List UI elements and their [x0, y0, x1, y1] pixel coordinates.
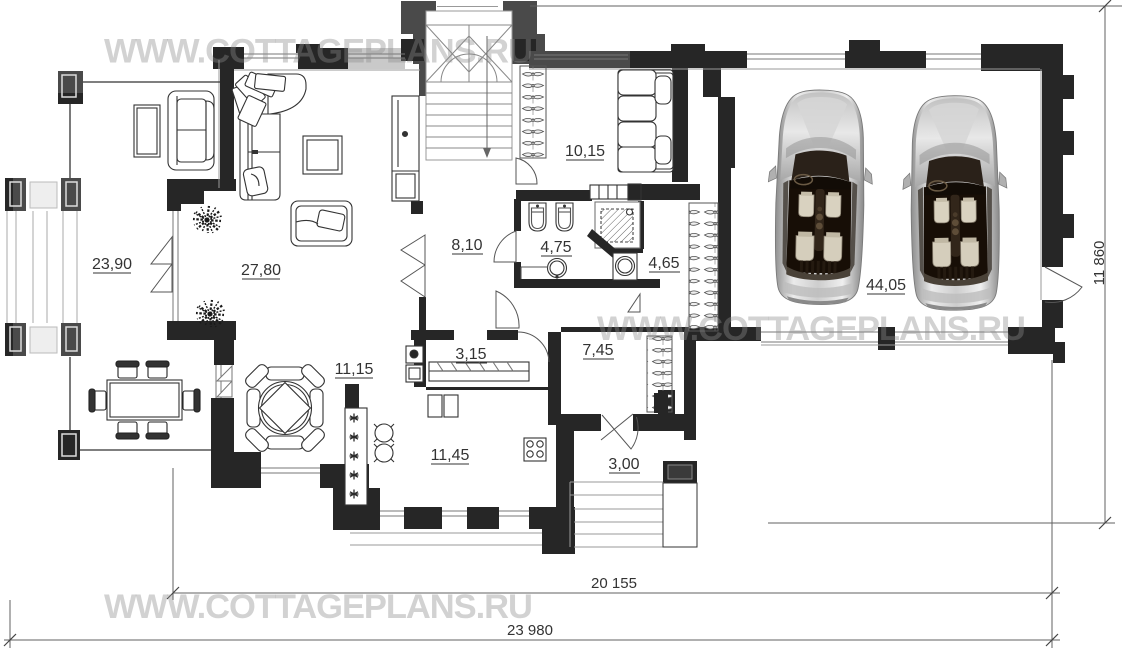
svg-text:3,00: 3,00	[608, 456, 639, 473]
svg-text:3,15: 3,15	[455, 346, 486, 363]
svg-text:WWW.COTTAGEPLANS.RU: WWW.COTTAGEPLANS.RU	[104, 588, 532, 626]
svg-text:4,65: 4,65	[648, 255, 679, 272]
svg-text:20 155: 20 155	[591, 575, 637, 592]
svg-text:WWW.COTTAGEPLANS.RU: WWW.COTTAGEPLANS.RU	[104, 33, 532, 71]
svg-text:4,75: 4,75	[540, 239, 571, 256]
svg-text:11 860: 11 860	[1091, 241, 1108, 286]
svg-text:11,15: 11,15	[335, 361, 374, 378]
svg-text:27,80: 27,80	[241, 262, 281, 279]
svg-text:10,15: 10,15	[565, 143, 605, 160]
svg-text:8,10: 8,10	[451, 237, 482, 254]
svg-text:11,45: 11,45	[431, 447, 470, 464]
svg-text:WWW.COTTAGEPLANS.RU: WWW.COTTAGEPLANS.RU	[597, 310, 1025, 348]
svg-text:44,05: 44,05	[866, 277, 906, 294]
svg-text:23,90: 23,90	[92, 256, 132, 273]
